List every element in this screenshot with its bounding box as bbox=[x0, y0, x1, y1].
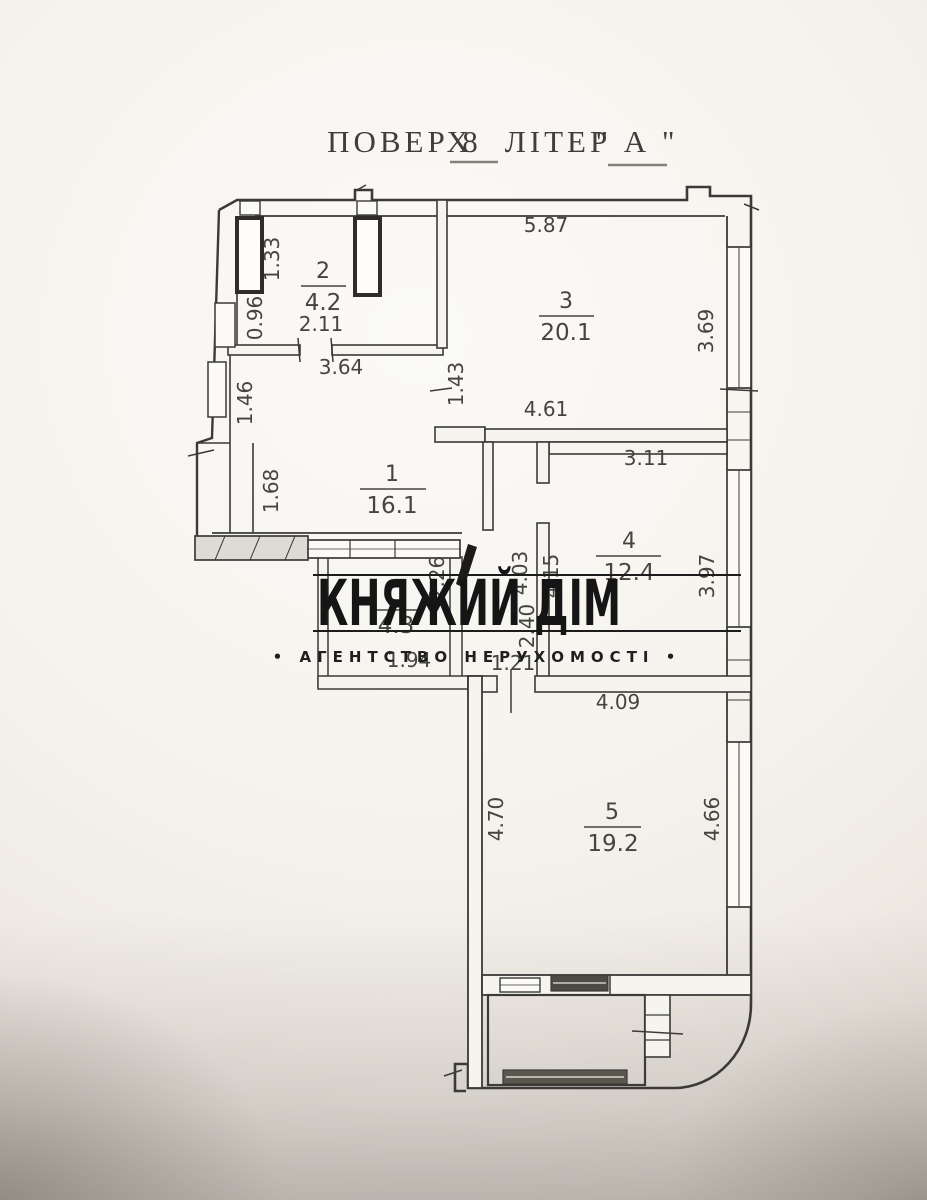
room-area: 19.2 bbox=[587, 831, 638, 857]
room-label-3: 3 20.1 bbox=[539, 289, 594, 346]
watermark-tagline: • АГЕНТСТВО НЕРУХОМОСТІ • bbox=[273, 648, 682, 666]
window-left-lower bbox=[208, 362, 226, 417]
dim-room5-left: 4.70 bbox=[484, 797, 508, 842]
dim-room1-left-lower: 1.68 bbox=[259, 469, 283, 514]
shaft-left bbox=[237, 218, 262, 292]
room-label-2: 2 4.2 bbox=[301, 259, 346, 316]
room-number: 1 bbox=[385, 462, 399, 487]
scanned-floor-plan-page: ПОВЕРХ 8 ЛІТЕР " А " bbox=[0, 0, 927, 1200]
shaft-mid bbox=[355, 218, 380, 295]
title-letter-value: " А " bbox=[595, 124, 678, 159]
room-label-5: 5 19.2 bbox=[584, 800, 641, 857]
room-area: 20.1 bbox=[540, 320, 591, 346]
dim-room5-right: 4.66 bbox=[700, 797, 724, 842]
window-left-upper bbox=[215, 303, 235, 347]
watermark: КНЯЖИЙ ДІМ • АГЕНТСТВО НЕРУХОМОСТІ • bbox=[273, 567, 741, 666]
dim-room3-top: 5.87 bbox=[524, 213, 569, 237]
shafts bbox=[237, 218, 380, 295]
dim-room4-top: 3.11 bbox=[624, 446, 669, 470]
dim-room1-top: 3.64 bbox=[319, 355, 364, 379]
dim-room1-left-upper: 1.46 bbox=[233, 381, 257, 426]
dim-room3-bottom: 4.61 bbox=[524, 397, 569, 421]
title-floor-label: ПОВЕРХ bbox=[327, 124, 473, 159]
floor-plan: ПОВЕРХ 8 ЛІТЕР " А " bbox=[0, 0, 927, 1200]
dim-room2-left: 0.96 bbox=[243, 296, 267, 341]
room-area: 4.2 bbox=[305, 290, 342, 316]
room-area: 16.1 bbox=[366, 493, 417, 519]
dim-shaft-left: 1.33 bbox=[260, 237, 284, 282]
room-number: 4 bbox=[622, 529, 636, 554]
room-label-1: 1 16.1 bbox=[360, 462, 426, 519]
vent-left bbox=[240, 201, 260, 215]
dim-room5-top: 4.09 bbox=[596, 690, 641, 714]
page-title: ПОВЕРХ 8 ЛІТЕР " А " bbox=[327, 124, 679, 165]
dim-opening-1-3: 1.43 bbox=[444, 362, 468, 407]
room-number: 2 bbox=[316, 259, 330, 284]
dim-room3-window: 3.69 bbox=[694, 309, 718, 354]
room-number: 5 bbox=[605, 800, 619, 825]
title-floor-value: 8 bbox=[462, 124, 482, 159]
vent-right bbox=[357, 201, 377, 215]
room-number: 3 bbox=[559, 289, 573, 314]
watermark-name: КНЯЖИЙ ДІМ bbox=[317, 567, 621, 640]
